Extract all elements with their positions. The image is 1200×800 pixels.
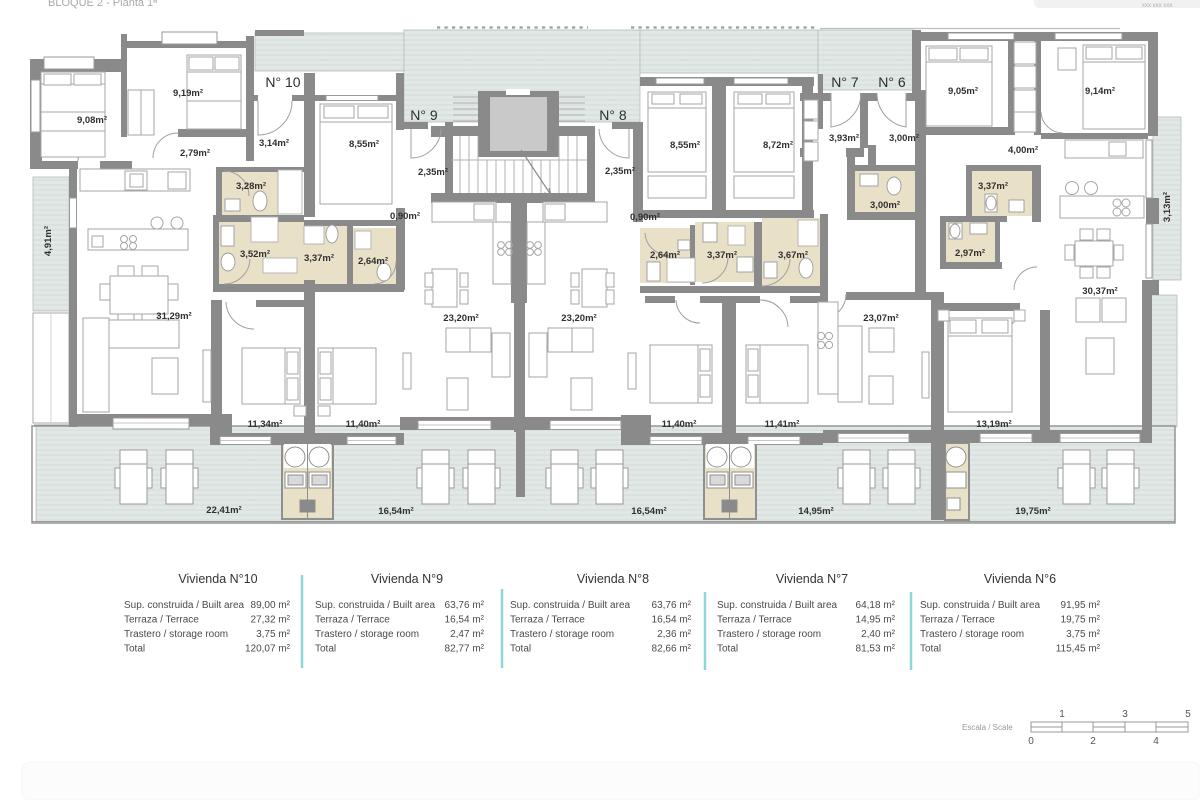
svg-text:23,20m²: 23,20m²	[561, 313, 596, 324]
svg-text:9,08m²: 9,08m²	[77, 115, 107, 126]
svg-text:4,91m²: 4,91m²	[43, 226, 54, 256]
svg-text:2,79m²: 2,79m²	[180, 148, 210, 159]
svg-text:2,64m²: 2,64m²	[650, 250, 680, 261]
svg-text:Trastero / storage room: Trastero / storage room	[717, 629, 821, 640]
svg-text:Terraza / Terrace: Terraza / Terrace	[124, 615, 199, 626]
svg-text:3,75 m²: 3,75 m²	[1066, 629, 1101, 640]
svg-text:Sup. construida / Built area: Sup. construida / Built area	[920, 600, 1041, 611]
svg-text:3: 3	[1122, 709, 1128, 720]
svg-text:81,53 m²: 81,53 m²	[856, 644, 896, 655]
svg-text:Vivienda N°6: Vivienda N°6	[984, 572, 1056, 586]
svg-text:Total: Total	[315, 644, 336, 655]
svg-text:2: 2	[1090, 736, 1096, 747]
svg-text:N° 6: N° 6	[878, 74, 906, 90]
svg-text:0,90m²: 0,90m²	[630, 212, 660, 223]
svg-text:23,20m²: 23,20m²	[443, 313, 478, 324]
svg-text:Total: Total	[717, 644, 738, 655]
svg-text:2,35m²: 2,35m²	[418, 167, 448, 178]
svg-text:Total: Total	[510, 644, 531, 655]
svg-text:Trastero / storage room: Trastero / storage room	[510, 629, 614, 640]
svg-text:4: 4	[1153, 736, 1159, 747]
svg-text:3,93m²: 3,93m²	[829, 133, 859, 144]
svg-text:3,67m²: 3,67m²	[778, 250, 808, 261]
svg-text:91,95 m²: 91,95 m²	[1061, 600, 1101, 611]
svg-text:4,00m²: 4,00m²	[1008, 145, 1038, 156]
svg-text:Sup. construida / Built area: Sup. construida / Built area	[124, 600, 245, 611]
svg-text:Total: Total	[920, 644, 941, 655]
svg-text:23,07m²: 23,07m²	[863, 313, 898, 324]
svg-text:3,52m²: 3,52m²	[240, 249, 270, 260]
svg-text:16,54m²: 16,54m²	[631, 506, 666, 517]
svg-text:14,95m²: 14,95m²	[798, 506, 833, 517]
svg-text:Trastero / storage room: Trastero / storage room	[315, 629, 419, 640]
svg-text:Escala / Scale: Escala / Scale	[962, 723, 1013, 732]
svg-text:63,76 m²: 63,76 m²	[652, 600, 692, 611]
svg-text:1: 1	[1059, 709, 1065, 720]
svg-text:8,55m²: 8,55m²	[670, 140, 700, 151]
svg-text:N° 10: N° 10	[265, 74, 300, 90]
svg-text:115,45 m²: 115,45 m²	[1056, 644, 1101, 655]
svg-text:3,14m²: 3,14m²	[259, 138, 289, 149]
svg-text:11,41m²: 11,41m²	[765, 419, 800, 430]
svg-text:Total: Total	[124, 644, 145, 655]
svg-text:Sup. construida / Built area: Sup. construida / Built area	[510, 600, 631, 611]
svg-text:N° 9: N° 9	[410, 107, 438, 123]
svg-text:9,19m²: 9,19m²	[173, 88, 203, 99]
svg-text:xxx xxx xxx: xxx xxx xxx	[1142, 3, 1172, 9]
svg-text:22,41m²: 22,41m²	[206, 505, 241, 516]
svg-text:82,66 m²: 82,66 m²	[652, 644, 692, 655]
svg-text:Sup. construida / Built area: Sup. construida / Built area	[717, 600, 838, 611]
svg-text:2,97m²: 2,97m²	[955, 248, 985, 259]
svg-text:2,40 m²: 2,40 m²	[861, 629, 896, 640]
svg-text:0: 0	[1028, 736, 1034, 747]
svg-text:N° 8: N° 8	[599, 107, 627, 123]
svg-text:27,32 m²: 27,32 m²	[251, 615, 291, 626]
svg-text:Terraza / Terrace: Terraza / Terrace	[510, 615, 585, 626]
svg-text:11,40m²: 11,40m²	[346, 419, 381, 430]
svg-text:Vivienda N°9: Vivienda N°9	[371, 572, 443, 586]
svg-text:3,00m²: 3,00m²	[870, 200, 900, 211]
svg-text:Terraza / Terrace: Terraza / Terrace	[315, 615, 390, 626]
svg-text:Terraza / Terrace: Terraza / Terrace	[717, 615, 792, 626]
svg-text:9,05m²: 9,05m²	[948, 86, 978, 97]
svg-text:3,00m²: 3,00m²	[889, 133, 919, 144]
svg-text:9,14m²: 9,14m²	[1085, 86, 1115, 97]
svg-text:11,40m²: 11,40m²	[662, 419, 697, 430]
svg-text:Vivienda N°7: Vivienda N°7	[776, 572, 848, 586]
svg-text:2,64m²: 2,64m²	[358, 256, 388, 267]
svg-text:63,76 m²: 63,76 m²	[445, 600, 485, 611]
svg-text:120,07 m²: 120,07 m²	[245, 644, 291, 655]
svg-text:2,36 m²: 2,36 m²	[657, 629, 692, 640]
svg-text:Trastero / storage room: Trastero / storage room	[124, 629, 228, 640]
svg-text:16,54 m²: 16,54 m²	[652, 615, 692, 626]
svg-text:N° 7: N° 7	[831, 74, 859, 90]
svg-text:BLOQUE 2 - Planta 1ª: BLOQUE 2 - Planta 1ª	[48, 0, 158, 9]
svg-text:64,18 m²: 64,18 m²	[856, 600, 896, 611]
svg-text:3,37m²: 3,37m²	[304, 253, 334, 264]
svg-text:2,35m²: 2,35m²	[605, 166, 635, 177]
svg-text:3,75 m²: 3,75 m²	[256, 629, 291, 640]
svg-text:8,55m²: 8,55m²	[349, 139, 379, 150]
svg-text:30,37m²: 30,37m²	[1082, 286, 1117, 297]
svg-text:82,77 m²: 82,77 m²	[445, 644, 485, 655]
svg-text:19,75m²: 19,75m²	[1015, 506, 1050, 517]
svg-text:16,54m²: 16,54m²	[378, 506, 413, 517]
svg-text:0,90m²: 0,90m²	[390, 211, 420, 222]
svg-text:89,00 m²: 89,00 m²	[251, 600, 291, 611]
svg-text:13,19m²: 13,19m²	[976, 419, 1011, 430]
svg-text:31,29m²: 31,29m²	[156, 311, 191, 322]
svg-text:Terraza / Terrace: Terraza / Terrace	[920, 615, 995, 626]
svg-text:3,37m²: 3,37m²	[978, 181, 1008, 192]
svg-text:3,28m²: 3,28m²	[236, 181, 266, 192]
svg-text:19,75 m²: 19,75 m²	[1061, 615, 1101, 626]
svg-text:2,47 m²: 2,47 m²	[450, 629, 485, 640]
svg-text:14,95 m²: 14,95 m²	[856, 615, 896, 626]
svg-text:Sup. construida / Built area: Sup. construida / Built area	[315, 600, 436, 611]
svg-text:11,34m²: 11,34m²	[248, 419, 283, 430]
svg-text:Vivienda N°8: Vivienda N°8	[577, 572, 649, 586]
svg-text:3,37m²: 3,37m²	[707, 250, 737, 261]
svg-text:5: 5	[1185, 709, 1191, 720]
svg-text:8,72m²: 8,72m²	[763, 140, 793, 151]
svg-text:3,13m²: 3,13m²	[1162, 192, 1173, 222]
svg-text:Trastero / storage room: Trastero / storage room	[920, 629, 1024, 640]
svg-text:Vivienda N°10: Vivienda N°10	[178, 572, 257, 586]
svg-text:16,54 m²: 16,54 m²	[445, 615, 485, 626]
